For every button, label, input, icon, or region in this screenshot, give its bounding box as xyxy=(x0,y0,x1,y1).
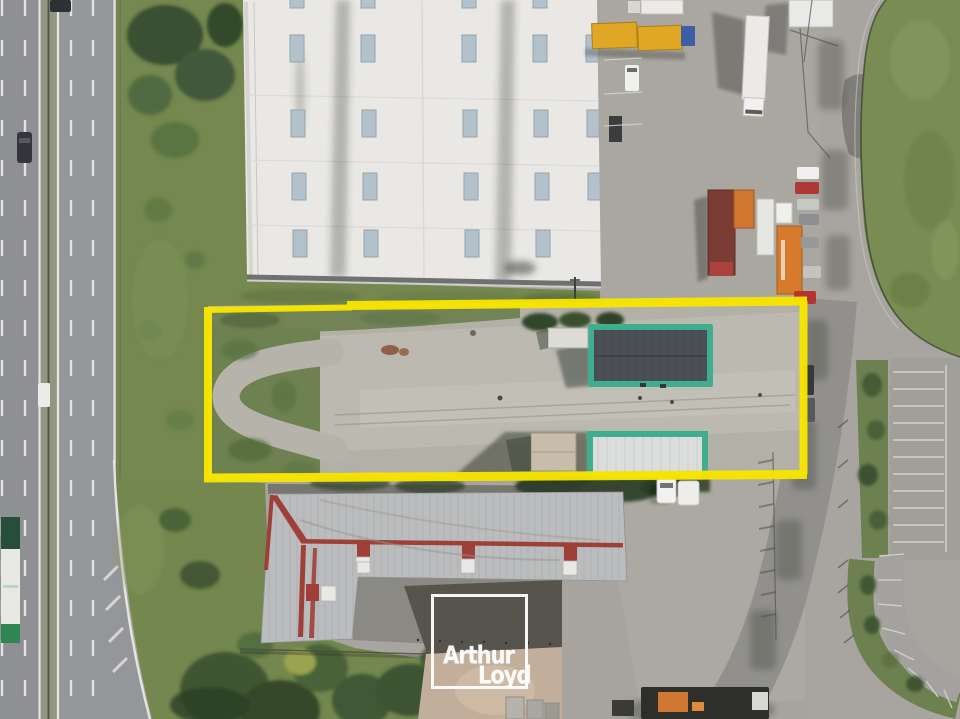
white-cab xyxy=(776,203,792,223)
parking-lot-straight xyxy=(856,358,960,560)
car-windshield xyxy=(19,138,30,143)
car-dark-top xyxy=(50,0,71,12)
rust-stain xyxy=(381,345,399,355)
watermark-line2: Loyd xyxy=(478,661,531,689)
white-car-2 xyxy=(678,481,699,505)
truck-white-top xyxy=(641,0,683,14)
white-trailer xyxy=(757,199,774,255)
van-windshield xyxy=(627,68,637,72)
white-car-1 xyxy=(657,478,676,503)
orange-container xyxy=(734,190,754,228)
truck-green-white xyxy=(1,517,20,643)
truck-orange-container xyxy=(658,692,688,712)
watermark-arthur-loyd: Arthur Loyd xyxy=(431,594,528,689)
teal-unit-dark-roof xyxy=(588,324,713,388)
blue-truck-cab xyxy=(681,26,695,46)
trailer-livery-stripe xyxy=(781,240,785,280)
car-dark-left xyxy=(17,132,32,163)
orange-trailer-long xyxy=(777,226,802,294)
dark-dumpster xyxy=(609,116,622,142)
truck-cab-white xyxy=(752,692,768,710)
white-container xyxy=(548,328,588,348)
dark-vehicle-small xyxy=(612,700,634,716)
yellow-trailer-1 xyxy=(592,22,638,49)
car1-windshield xyxy=(660,483,673,488)
yellow-trailer-2 xyxy=(638,25,683,51)
pallet-stack-2 xyxy=(527,700,543,719)
maroon-truck-cab xyxy=(710,262,733,276)
car-white-small xyxy=(38,383,50,407)
pallet-stack-1 xyxy=(506,697,524,719)
rust-stain-2 xyxy=(399,348,409,356)
aerial-photo: Arthur Loyd xyxy=(0,0,960,719)
pallet-stack-3 xyxy=(545,703,559,719)
white-warehouse xyxy=(243,0,601,288)
highlighted-parcel-interior xyxy=(208,300,804,480)
truck-orange-box xyxy=(692,702,704,711)
truck-white-top-cab xyxy=(628,1,640,13)
